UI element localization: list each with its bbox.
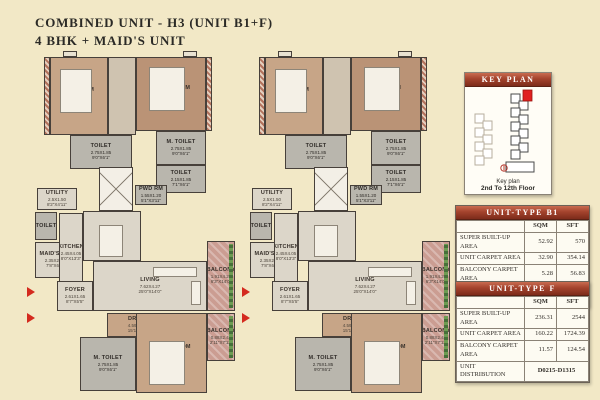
title-line2: 4 BHK + MAID'S UNIT bbox=[35, 32, 273, 50]
room-dimension-label: 5'1"X3'11" bbox=[356, 198, 376, 203]
highlighted-unit bbox=[523, 90, 532, 101]
row-label: SUPER BUILT-UP AREA bbox=[457, 232, 525, 253]
room-name-label: BALCONY bbox=[207, 328, 235, 335]
room-name-label: KITCHEN bbox=[274, 244, 298, 251]
room-toilet: TOILET2.75X1.859'0"X6'1" bbox=[70, 135, 132, 169]
unit-table-b1-title: UNIT-TYPE B1 bbox=[456, 206, 589, 220]
room-name-label: M. TOILET bbox=[167, 139, 196, 146]
value-sft: 2544 bbox=[557, 308, 589, 329]
room-wardrobe bbox=[108, 57, 136, 135]
room-dimension-label: 9'0"X6'1" bbox=[307, 155, 325, 160]
dining-table-icon bbox=[99, 225, 123, 257]
room-dimension-label: 8'0"X13'3" bbox=[276, 256, 296, 261]
bed-icon bbox=[149, 67, 185, 111]
spacer-cell bbox=[457, 221, 525, 233]
room-dimension-label: 25'0"X14'0" bbox=[354, 289, 377, 294]
entry-arrow-icon bbox=[242, 287, 250, 297]
room-name-label: KITCHEN bbox=[59, 244, 83, 251]
sofa-icon bbox=[153, 267, 197, 277]
unit-table-f-title: UNIT-TYPE F bbox=[456, 282, 589, 296]
bed-icon bbox=[60, 69, 92, 113]
room-name-label: BALCONY bbox=[422, 328, 450, 335]
room-dimension-label: 7'1"X6'1" bbox=[172, 182, 190, 187]
room-balcony: BALCONY0.88X2.412'11"X7'11" bbox=[207, 313, 235, 361]
room-balcony: BALCONY1.91X4.276'3"X14'0" bbox=[422, 241, 450, 311]
room-powder-room: PWD RM1.55X1.205'1"X3'11" bbox=[135, 185, 167, 205]
room-dimension-label: 8'7"X5'5" bbox=[281, 299, 299, 304]
value-sqm: 52.92 bbox=[525, 232, 557, 253]
room-name-label: PWD RM bbox=[354, 186, 378, 193]
room-balcony: BALCONY0.88X2.412'11"X7'11" bbox=[422, 313, 450, 361]
staircase-core bbox=[314, 167, 348, 211]
room-dimension-label: 9'0"X6'1" bbox=[314, 367, 332, 372]
dining-table-icon bbox=[314, 225, 338, 257]
col-header-sqm: SQM bbox=[525, 297, 557, 309]
sofa-icon bbox=[191, 281, 201, 305]
room-name-label: M. TOILET bbox=[94, 355, 123, 362]
brick-wall bbox=[206, 57, 212, 131]
row-label: BALCONY CARPET AREA bbox=[457, 341, 525, 362]
room-dimension-label: 8'0"X13'3" bbox=[61, 256, 81, 261]
room-dimension-label: 9'0"X6'1" bbox=[172, 151, 190, 156]
room-dimension-label: 9'0"X6'1" bbox=[92, 155, 110, 160]
bed-icon bbox=[149, 341, 185, 385]
room-master-toilet: M. TOILET2.75X1.859'0"X6'1" bbox=[156, 131, 206, 165]
room-name-label: TOILET bbox=[386, 170, 407, 177]
value-sqm: 160.22 bbox=[525, 329, 557, 341]
key-plan-header: KEY PLAN bbox=[465, 73, 551, 87]
value-sqm: 236.31 bbox=[525, 308, 557, 329]
room-dimension-label: 6'3"X14'0" bbox=[211, 279, 231, 284]
room-balcony: BALCONY1.91X4.276'3"X14'0" bbox=[207, 241, 235, 311]
entry-arrow-icon bbox=[27, 287, 35, 297]
room-dimension-label: 8'7"X5'5" bbox=[66, 299, 84, 304]
room-dimension-label: 5'1"X3'11" bbox=[141, 198, 161, 203]
col-header-sft: SFT bbox=[557, 297, 589, 309]
spacer-cell bbox=[457, 297, 525, 309]
col-header-sft: SFT bbox=[557, 221, 589, 233]
room-name-label: TOILET bbox=[171, 170, 192, 177]
value-sft: 124.54 bbox=[557, 341, 589, 362]
room-name-label: TOILET bbox=[91, 143, 112, 150]
room-name-label: PWD RM bbox=[139, 186, 163, 193]
sofa-icon bbox=[406, 281, 416, 305]
bed-icon bbox=[364, 67, 400, 111]
row-label: UNIT CARPET AREA bbox=[457, 253, 525, 265]
brochure-page: COMBINED UNIT - H3 (UNIT B1+F) 4 BHK + M… bbox=[0, 0, 600, 400]
key-plan-caption: Key plan 2nd To 12th Floor bbox=[465, 179, 551, 192]
room-name-label: BALCONY bbox=[207, 267, 235, 274]
room-dimension-label: 8'2"X4'11" bbox=[47, 202, 67, 207]
sofa-icon bbox=[368, 267, 412, 277]
room-master-toilet: M. TOILET2.75X1.859'0"X6'1" bbox=[80, 337, 136, 391]
entry-arrow-icon bbox=[27, 313, 35, 323]
room-name-label: FOYER bbox=[65, 287, 85, 294]
unit-table-f: UNIT-TYPE F SQM SFT SUPER BUILT-UP AREA … bbox=[455, 281, 590, 383]
floor-plan-right: BEDROOM3.65X3.0512'0"X10'0" BEDROOM4.25X… bbox=[250, 55, 452, 395]
room-foyer: FOYER2.61X1.658'7"X5'5" bbox=[57, 281, 93, 311]
brick-wall bbox=[421, 57, 427, 131]
room-toilet: TOILET2.75X1.859'0"X6'1" bbox=[371, 131, 421, 165]
bed-icon bbox=[275, 69, 307, 113]
room-dimension-label: 6'3"X14'0" bbox=[426, 279, 446, 284]
bed-icon bbox=[364, 341, 400, 385]
title-line1: COMBINED UNIT - H3 (UNIT B1+F) bbox=[35, 14, 273, 32]
room-name-label: TOILET bbox=[306, 143, 327, 150]
room-name-label: LIVING bbox=[355, 277, 375, 284]
room-dimension-label: 9'0"X6'1" bbox=[99, 367, 117, 372]
value-sqm: 11.57 bbox=[525, 341, 557, 362]
value-sqm: 32.90 bbox=[525, 253, 557, 265]
room-foyer: FOYER2.61X1.658'7"X5'5" bbox=[272, 281, 308, 311]
room-name-label: BALCONY bbox=[422, 267, 450, 274]
room-maid-toilet: TOILET bbox=[35, 212, 57, 240]
room-name-label: UTILITY bbox=[261, 190, 283, 197]
key-plan-box: KEY PLAN Key plan 2nd To 12th Floo bbox=[464, 72, 552, 195]
room-name-label: LIVING bbox=[140, 277, 160, 284]
room-dimension-label: 9'0"X6'1" bbox=[387, 151, 405, 156]
room-dimension-label: 7'1"X6'1" bbox=[387, 182, 405, 187]
room-name-label: TOILET bbox=[251, 223, 272, 230]
room-powder-room: PWD RM1.55X1.205'1"X3'11" bbox=[350, 185, 382, 205]
room-name-label: FOYER bbox=[280, 287, 300, 294]
key-plan-towers bbox=[466, 88, 550, 174]
room-dimension-label: 8'2"X4'11" bbox=[262, 202, 282, 207]
value-sft: 354.14 bbox=[557, 253, 589, 265]
room-name-label: TOILET bbox=[386, 139, 407, 146]
room-utility: UTILITY2.5X1.508'2"X4'11" bbox=[252, 188, 292, 210]
row-label: UNIT DISTRIBUTION bbox=[457, 361, 525, 382]
room-toilet: TOILET2.75X1.859'0"X6'1" bbox=[285, 135, 347, 169]
staircase-core bbox=[99, 167, 133, 211]
entry-arrow-icon bbox=[242, 313, 250, 323]
room-utility: UTILITY2.5X1.508'2"X4'11" bbox=[37, 188, 77, 210]
page-title: COMBINED UNIT - H3 (UNIT B1+F) 4 BHK + M… bbox=[35, 14, 273, 50]
floor-plan-left: BEDROOM3.65X3.0512'0"X10'0" M. BEDROOM4.… bbox=[35, 55, 237, 395]
room-wardrobe bbox=[323, 57, 351, 135]
room-dimension-label: 2'11"X7'11" bbox=[425, 340, 447, 345]
room-name-label: TOILET bbox=[36, 223, 57, 230]
key-plan-floors: 2nd To 12th Floor bbox=[465, 185, 551, 192]
col-header-sqm: SQM bbox=[525, 221, 557, 233]
room-name-label: UTILITY bbox=[46, 190, 68, 197]
room-master-toilet: M. TOILET2.75X1.859'0"X6'1" bbox=[295, 337, 351, 391]
room-dimension-label: 25'0"X14'0" bbox=[139, 289, 162, 294]
room-name-label: M. TOILET bbox=[309, 355, 338, 362]
room-maid-toilet: TOILET bbox=[250, 212, 272, 240]
room-dimension-label: 2'11"X7'11" bbox=[210, 340, 232, 345]
row-label: UNIT CARPET AREA bbox=[457, 329, 525, 341]
value-sft: 1724.39 bbox=[557, 329, 589, 341]
value-sft: 570 bbox=[557, 232, 589, 253]
distribution-value: D0215-D1315 bbox=[525, 361, 589, 382]
row-label: SUPER BUILT-UP AREA bbox=[457, 308, 525, 329]
